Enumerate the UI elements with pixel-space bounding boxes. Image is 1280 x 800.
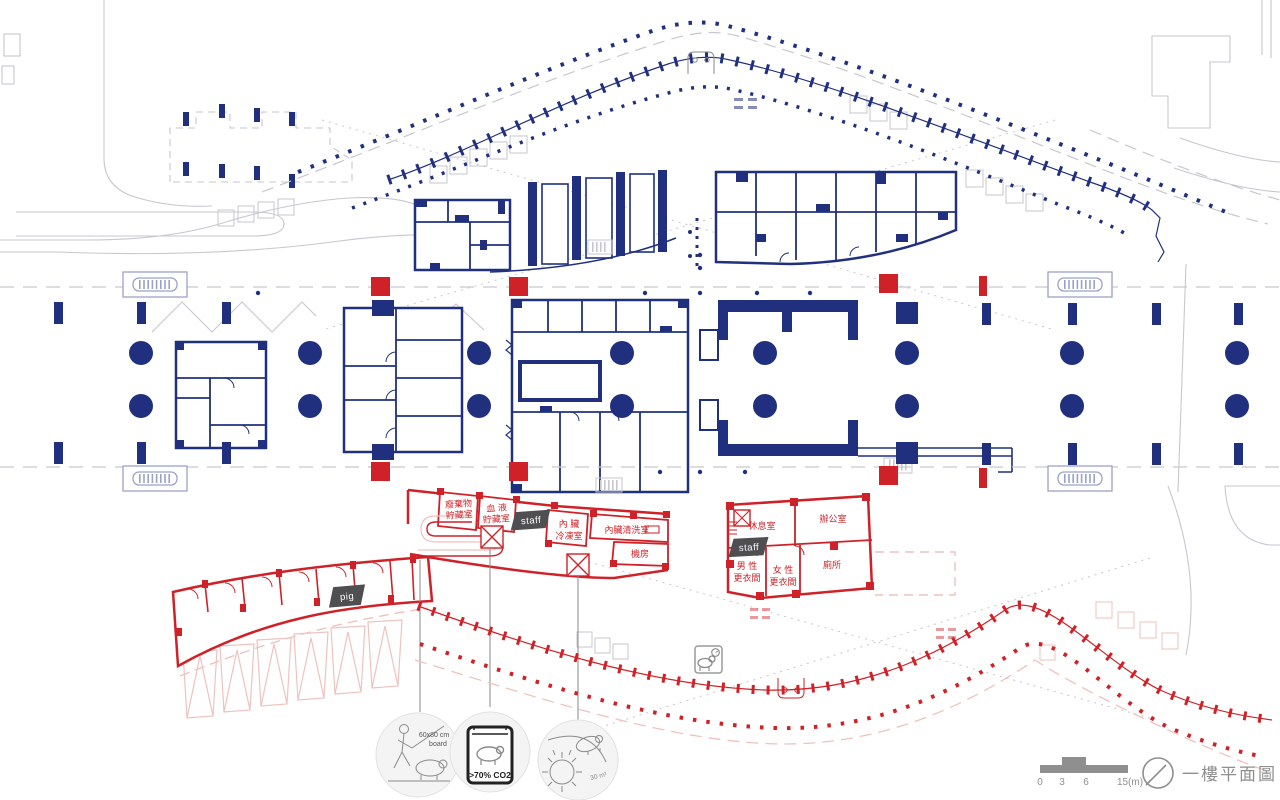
navy-building-upper-left-wing <box>415 170 676 272</box>
svg-text:staff: staff <box>521 515 542 527</box>
navy-building-left-small-block <box>176 342 266 448</box>
pig-tag: pig <box>327 584 367 607</box>
callout-label-stun-board: 60x80 cm <box>419 732 450 739</box>
floor-plan-drawing: 廢棄物 貯藏室 血 液 貯藏室 內 臟 冷凍室 內臟清洗室 機房 休息室 辦公室… <box>0 0 1280 800</box>
callout-label-stun-board-2: board <box>429 741 447 748</box>
north-arrow-icon <box>1143 758 1173 788</box>
room-label-office: 辦公室 <box>819 513 846 524</box>
room-label-blood-storage-2: 貯藏室 <box>483 512 511 525</box>
callout-scalding: 30 m² <box>538 720 618 800</box>
room-label-organ-freezer-2: 冷凍室 <box>555 530 582 541</box>
floor-plan-canvas: 廢棄物 貯藏室 血 液 貯藏室 內 臟 冷凍室 內臟清洗室 機房 休息室 辦公室… <box>0 0 1280 800</box>
room-label-womens-locker: 女 性 <box>773 564 794 575</box>
context-columns <box>183 104 295 188</box>
room-label-blood-storage: 血 液 <box>486 501 507 513</box>
callout-stun-board: 60x80 cm board <box>376 713 460 797</box>
scale-bar: 0 3 6 15(m) <box>1037 757 1143 788</box>
svg-text:pig: pig <box>340 591 355 603</box>
callout-label-co2: >70% CO2 <box>469 770 511 780</box>
room-label-waste-storage: 廢棄物 <box>445 497 473 510</box>
room-label-mens-locker-2: 更衣間 <box>733 572 760 583</box>
navy-building-central-cluster <box>506 300 688 492</box>
room-label-machine-room: 機房 <box>631 548 649 559</box>
detail-callouts: 60x80 cm board >70% CO2 30 m <box>376 712 618 800</box>
room-label-organ-freezer: 內 臟 <box>559 518 580 529</box>
room-label-waste-storage-2: 貯藏室 <box>445 508 473 521</box>
navy-building-main-left-cluster <box>344 300 462 460</box>
room-label-womens-locker-2: 更衣間 <box>769 576 796 587</box>
room-label-lounge: 休息室 <box>748 520 775 531</box>
svg-text:staff: staff <box>739 542 760 554</box>
navy-building-right-wing <box>700 300 1012 473</box>
staff-tag-1: staff <box>509 510 551 531</box>
pig-holding-icon <box>695 646 722 673</box>
context-hatch-marks-red <box>750 608 956 639</box>
room-label-organ-washing: 內臟清洗室 <box>604 524 649 535</box>
plan-title: 一樓平面圖 <box>1182 765 1277 784</box>
staff-tag-2: staff <box>728 537 770 557</box>
navy-building-upper-right-wing <box>688 172 956 268</box>
callout-co2-chamber: >70% CO2 <box>450 712 530 792</box>
scale-tick-6: 6 <box>1083 777 1089 788</box>
room-label-toilet: 廁所 <box>823 559 841 570</box>
scale-tick-0: 0 <box>1037 777 1043 788</box>
scale-tick-15: 15(m) <box>1117 777 1143 788</box>
room-label-mens-locker: 男 性 <box>737 560 758 571</box>
context-paving-squares-pink <box>1040 602 1178 660</box>
scale-tick-3: 3 <box>1059 777 1065 788</box>
